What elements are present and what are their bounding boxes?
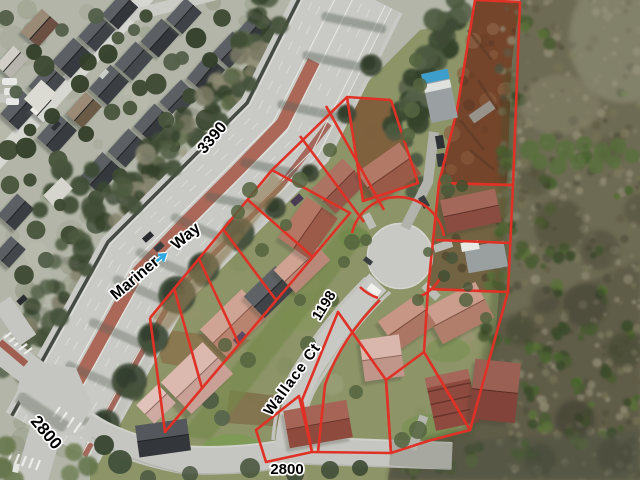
svg-text:2800: 2800: [270, 461, 303, 478]
